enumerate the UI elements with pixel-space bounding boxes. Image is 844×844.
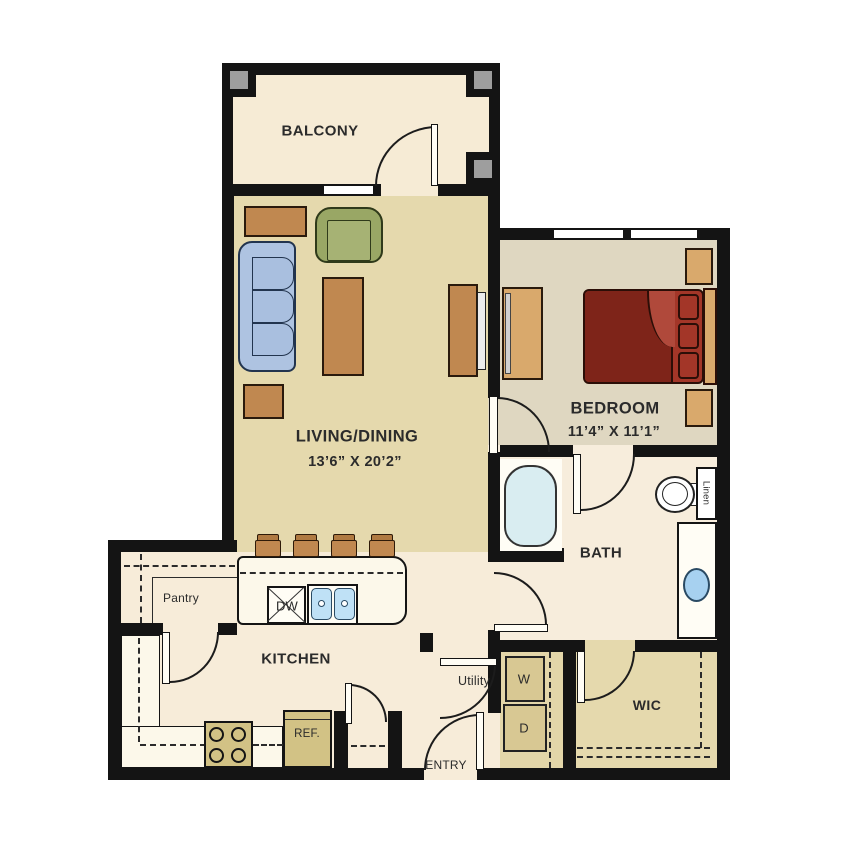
bar-stool <box>255 540 281 557</box>
headboard <box>703 288 717 385</box>
entry-door <box>476 712 484 770</box>
outer-left-wall <box>108 540 121 780</box>
bath-wic-wall <box>635 640 717 652</box>
pantry-shelf-dash <box>140 554 142 623</box>
hall-bath-door <box>494 624 548 632</box>
pillar-cap <box>474 160 492 178</box>
pillow <box>678 323 699 349</box>
sink-drain <box>318 600 325 607</box>
living-left-wall <box>222 184 234 552</box>
nightstand <box>685 248 713 285</box>
wic-shelf-dash <box>577 756 710 758</box>
balcony-label: BALCONY <box>282 123 359 140</box>
dryer-label: D <box>519 721 529 736</box>
utility-label: Utility <box>458 674 490 688</box>
stove-burner <box>231 748 246 763</box>
floor-plan: BALCONY LIVING/DINING 13’6” X 20’2” BEDR… <box>0 0 844 844</box>
outer-right-wall <box>717 228 730 780</box>
pantry-door <box>162 632 170 684</box>
bedroom-window <box>629 228 699 240</box>
coat-closet-door <box>345 683 352 724</box>
bar-stool <box>293 540 319 557</box>
side-table <box>244 206 307 237</box>
sofa-cushion <box>252 290 294 323</box>
pantry-shelf-edge <box>152 577 153 623</box>
sofa-cushion <box>252 257 294 290</box>
pantry-top-wall <box>108 540 237 552</box>
bath-door <box>573 454 581 514</box>
kitchen-label: KITCHEN <box>261 651 330 668</box>
outer-bottom-wall <box>108 768 730 780</box>
utility-door <box>440 658 497 666</box>
washer-label: W <box>518 672 530 687</box>
living-window <box>322 184 375 196</box>
bathtub <box>504 465 557 547</box>
living-bedroom-wall <box>488 184 500 398</box>
entry-label: ENTRY <box>425 758 466 772</box>
kitchen-counter <box>121 726 283 768</box>
balcony-door <box>431 124 438 186</box>
sink-drain <box>341 600 348 607</box>
wic-shelf-dash <box>577 747 710 749</box>
toilet-bowl <box>662 482 688 506</box>
utility-door-line <box>549 652 551 768</box>
bar-stool <box>369 540 395 557</box>
linen-label: Linen <box>701 481 712 505</box>
pantry-bottom-wall <box>218 623 237 635</box>
bedroom-door <box>489 396 498 454</box>
pantry-label: Pantry <box>163 591 199 605</box>
hall-bath-wall <box>488 452 500 554</box>
pillow <box>678 352 699 379</box>
counter-line <box>140 744 206 746</box>
bedroom-bath-wall <box>633 445 717 457</box>
armchair-seat <box>327 220 371 261</box>
nightstand <box>685 389 713 427</box>
living-dining-dimensions: 13’6” X 20’2” <box>308 454 402 470</box>
bedroom-dimensions: 11’4” X 11’1” <box>568 424 660 440</box>
dresser-tv <box>505 293 511 374</box>
counter-line <box>253 744 283 746</box>
stove-burner <box>231 727 246 742</box>
island-overhang-line <box>240 572 403 574</box>
stove-burner <box>209 748 224 763</box>
bar-stool <box>331 540 357 557</box>
bath-label: BATH <box>580 545 622 562</box>
pantry-bottom-wall <box>108 623 163 635</box>
wic-shelf-dash <box>700 652 702 748</box>
pillar-cap <box>474 71 492 89</box>
utility-wic-wall <box>563 645 576 768</box>
refrigerator-line <box>285 719 330 720</box>
kitchen-hall-stub <box>420 633 433 652</box>
pillar-cap <box>230 71 248 89</box>
balcony-floor <box>233 75 489 185</box>
bedroom-window <box>552 228 625 240</box>
coat-closet-shelf <box>351 745 385 747</box>
dishwasher-label: DW <box>276 599 298 614</box>
sofa-cushion <box>252 323 294 356</box>
tv <box>477 292 486 370</box>
tv-console <box>448 284 478 377</box>
pantry-shelf-edge <box>152 577 237 578</box>
bedroom-label: BEDROOM <box>571 400 660 419</box>
bed <box>583 289 704 384</box>
stove-burner <box>209 727 224 742</box>
coffee-table <box>322 277 364 376</box>
wic-door <box>577 651 585 703</box>
wic-label: WIC <box>633 697 661 713</box>
living-dining-label: LIVING/DINING <box>296 428 419 447</box>
vanity-sink <box>683 568 710 602</box>
coat-closet-stub <box>388 711 402 768</box>
balcony-top-wall <box>222 63 500 75</box>
pillow <box>678 294 699 320</box>
refrigerator-label: REF. <box>294 728 320 740</box>
side-table <box>243 384 284 419</box>
counter-line <box>138 638 140 742</box>
